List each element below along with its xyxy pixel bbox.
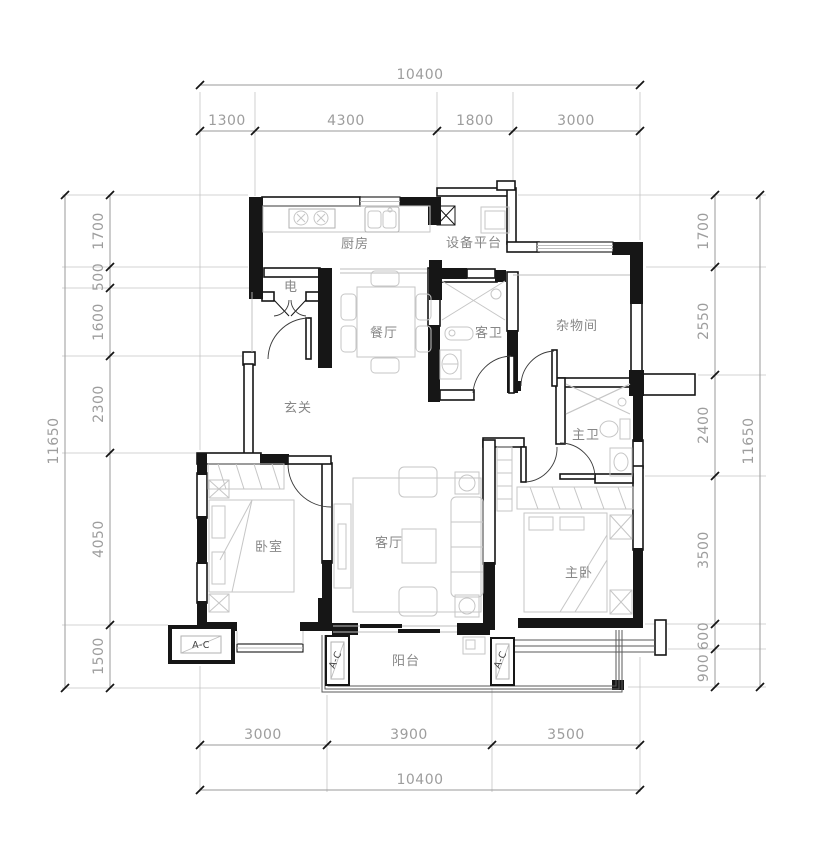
ac-unit-balcony: A-C (326, 636, 349, 685)
dim-left-seg-1: 500 (91, 263, 107, 291)
living-furniture (334, 467, 483, 617)
dimensions-bottom: 3000 3900 3500 10400 (196, 727, 644, 794)
dim-top-total: 10400 (396, 67, 443, 83)
room-label-electrical: 电 (284, 280, 298, 295)
nightstand (610, 515, 632, 539)
dim-bottom-seg-1: 3900 (390, 727, 428, 743)
room-label-living: 客厅 (375, 535, 403, 551)
balcony-fixtures (463, 637, 485, 654)
dim-top-seg-2: 1800 (456, 113, 494, 129)
dim-right-seg-4: 600 (696, 622, 712, 650)
sink-icon (610, 448, 632, 476)
room-label-guest-bath: 客卫 (475, 325, 503, 341)
entry-door (268, 318, 311, 359)
dim-left-total: 11650 (46, 417, 62, 464)
dim-bottom-total: 10400 (396, 772, 443, 788)
coffee-table (402, 529, 436, 563)
dimensions-right: 1700 2550 2400 3500 600 900 11650 (696, 191, 764, 691)
room-label-master-bedroom: 主卧 (565, 566, 593, 581)
kitchen-window (360, 197, 400, 206)
dim-left-seg-4: 4050 (91, 520, 107, 558)
bed (524, 513, 607, 612)
ac-unit-left: A-C (170, 627, 233, 662)
dim-top-seg-0: 1300 (208, 113, 246, 129)
floor-plan-drawing: 10400 1300 4300 1800 3000 3000 3900 3500… (0, 0, 828, 849)
dining-table (357, 287, 415, 357)
room-label-storage: 杂物间 (556, 319, 598, 334)
ac-label-0: A-C (192, 640, 210, 651)
drain-icon (491, 289, 501, 299)
room-label-balcony: 阳台 (392, 654, 420, 669)
floor-plan-page: 10400 1300 4300 1800 3000 3000 3900 3500… (0, 0, 828, 849)
dim-left-seg-5: 1500 (91, 637, 107, 675)
dimensions-left: 11650 1700 500 1600 2300 4050 1500 (46, 191, 114, 692)
tv-console (334, 504, 351, 588)
room-label-dining: 餐厅 (370, 325, 398, 341)
bedroom-window (237, 631, 303, 652)
dim-right-seg-0: 1700 (696, 212, 712, 250)
dim-right-total: 11650 (741, 417, 757, 464)
dim-right-seg-1: 2550 (696, 302, 712, 340)
rug (353, 478, 481, 612)
room-label-kitchen: 厨房 (341, 236, 369, 252)
room-label-master-bath: 主卫 (572, 428, 600, 443)
cabinet (497, 447, 512, 511)
kitchen-fixtures (263, 206, 509, 233)
bedroom-furniture (208, 464, 294, 612)
dim-top-seg-3: 3000 (557, 113, 595, 129)
storage-door (521, 350, 557, 386)
dim-right-seg-5: 900 (696, 654, 712, 682)
tv (338, 524, 346, 569)
dim-right-seg-2: 2400 (696, 406, 712, 444)
nightstand (209, 594, 229, 612)
room-label-bedroom: 卧室 (255, 539, 283, 555)
room-label-entry: 玄关 (284, 401, 312, 416)
toilet-icon (600, 419, 630, 439)
drain-icon (618, 398, 626, 406)
balcony-outline (322, 630, 622, 692)
dim-top-seg-1: 4300 (327, 113, 365, 129)
master-bedroom-ledge (513, 640, 655, 652)
dimensions-top: 10400 1300 4300 1800 3000 (196, 67, 644, 135)
dim-bottom-seg-2: 3500 (547, 727, 585, 743)
master-bath-door (560, 443, 595, 479)
nightstand (610, 590, 632, 614)
dim-left-seg-0: 1700 (91, 212, 107, 250)
master-bedroom-door (521, 447, 557, 482)
dim-left-seg-3: 2300 (91, 385, 107, 423)
room-label-equipment-platform: 设备平台 (446, 235, 502, 251)
dim-bottom-seg-0: 3000 (244, 727, 282, 743)
ac-unit-right: A-C (491, 638, 514, 685)
storage-window (537, 242, 613, 252)
armchair (399, 467, 437, 497)
dim-left-seg-2: 1600 (91, 303, 107, 341)
dining-furniture (341, 271, 431, 373)
master-bedroom-furniture (497, 447, 633, 614)
dim-right-seg-3: 3500 (696, 531, 712, 569)
electrical-closet-doors (274, 300, 306, 316)
